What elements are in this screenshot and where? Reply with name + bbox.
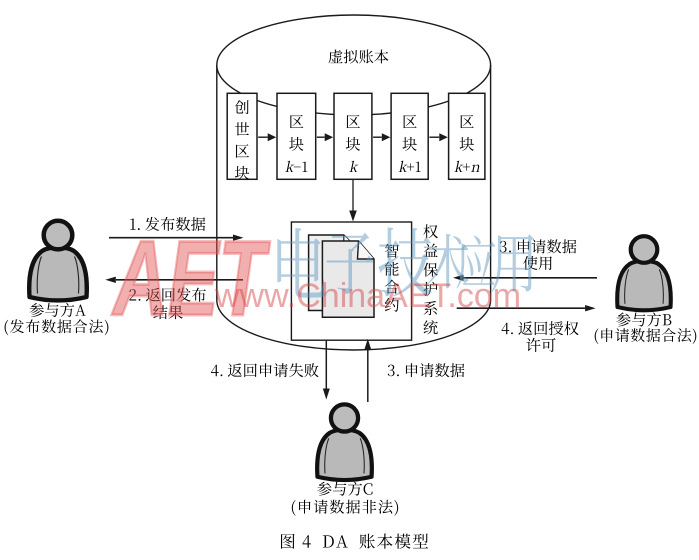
svg-text:www.ChinaAET.com: www.ChinaAET.com: [214, 277, 521, 315]
